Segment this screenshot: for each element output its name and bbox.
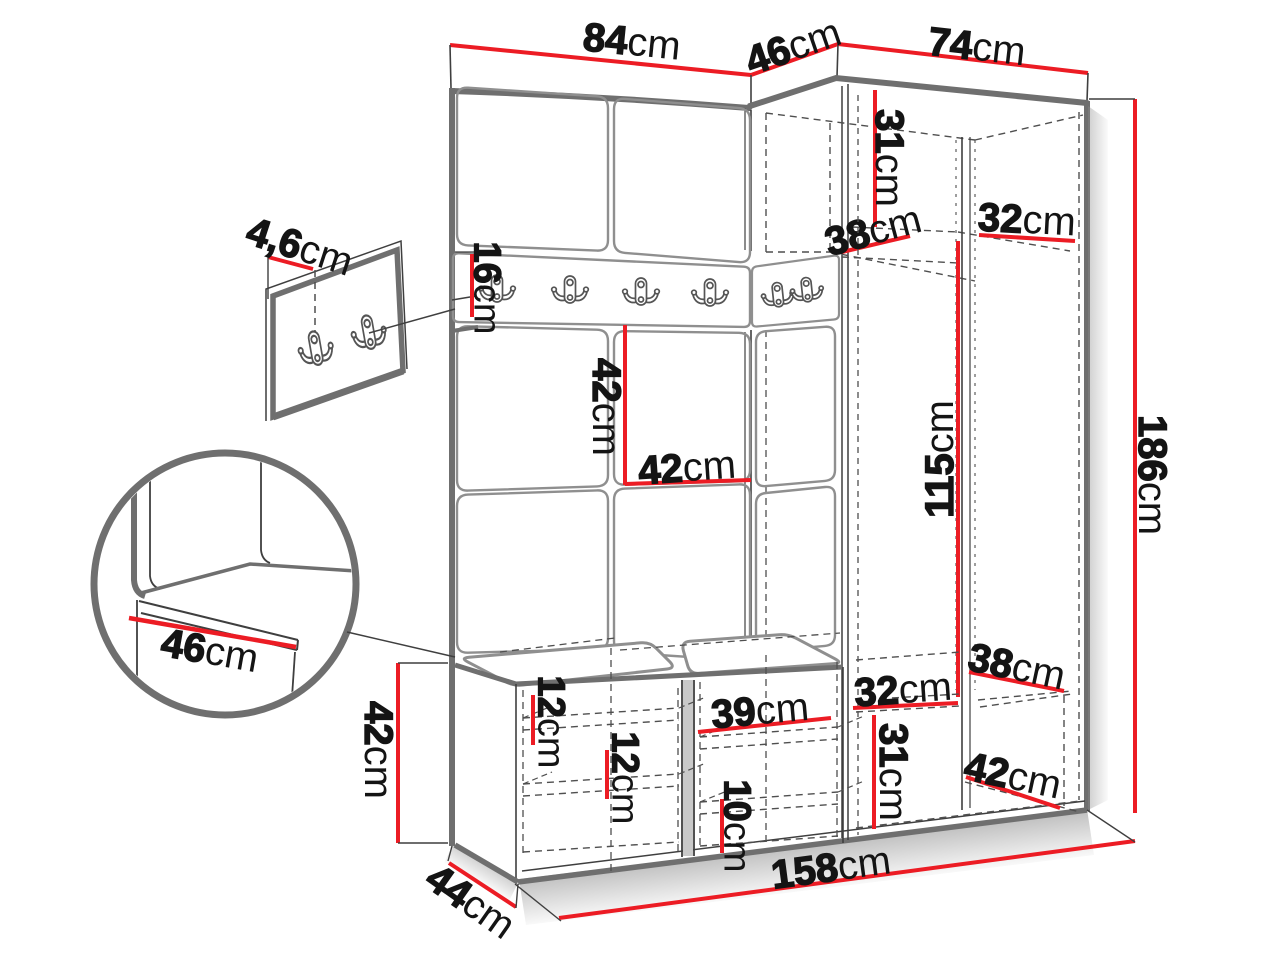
- svg-text:12cm: 12cm: [530, 676, 572, 769]
- svg-text:42cm: 42cm: [584, 358, 628, 456]
- svg-text:39cm: 39cm: [709, 685, 810, 737]
- svg-text:115cm: 115cm: [918, 400, 962, 518]
- svg-text:12cm: 12cm: [604, 732, 646, 825]
- svg-text:42cm: 42cm: [356, 701, 400, 799]
- svg-text:42cm: 42cm: [637, 443, 738, 494]
- svg-text:32cm: 32cm: [977, 195, 1077, 244]
- svg-text:16cm: 16cm: [466, 242, 508, 335]
- svg-text:32cm: 32cm: [853, 665, 954, 716]
- svg-text:186cm: 186cm: [1130, 415, 1174, 535]
- svg-text:31cm: 31cm: [867, 109, 911, 207]
- svg-text:31cm: 31cm: [871, 723, 915, 821]
- svg-text:10cm: 10cm: [716, 780, 758, 873]
